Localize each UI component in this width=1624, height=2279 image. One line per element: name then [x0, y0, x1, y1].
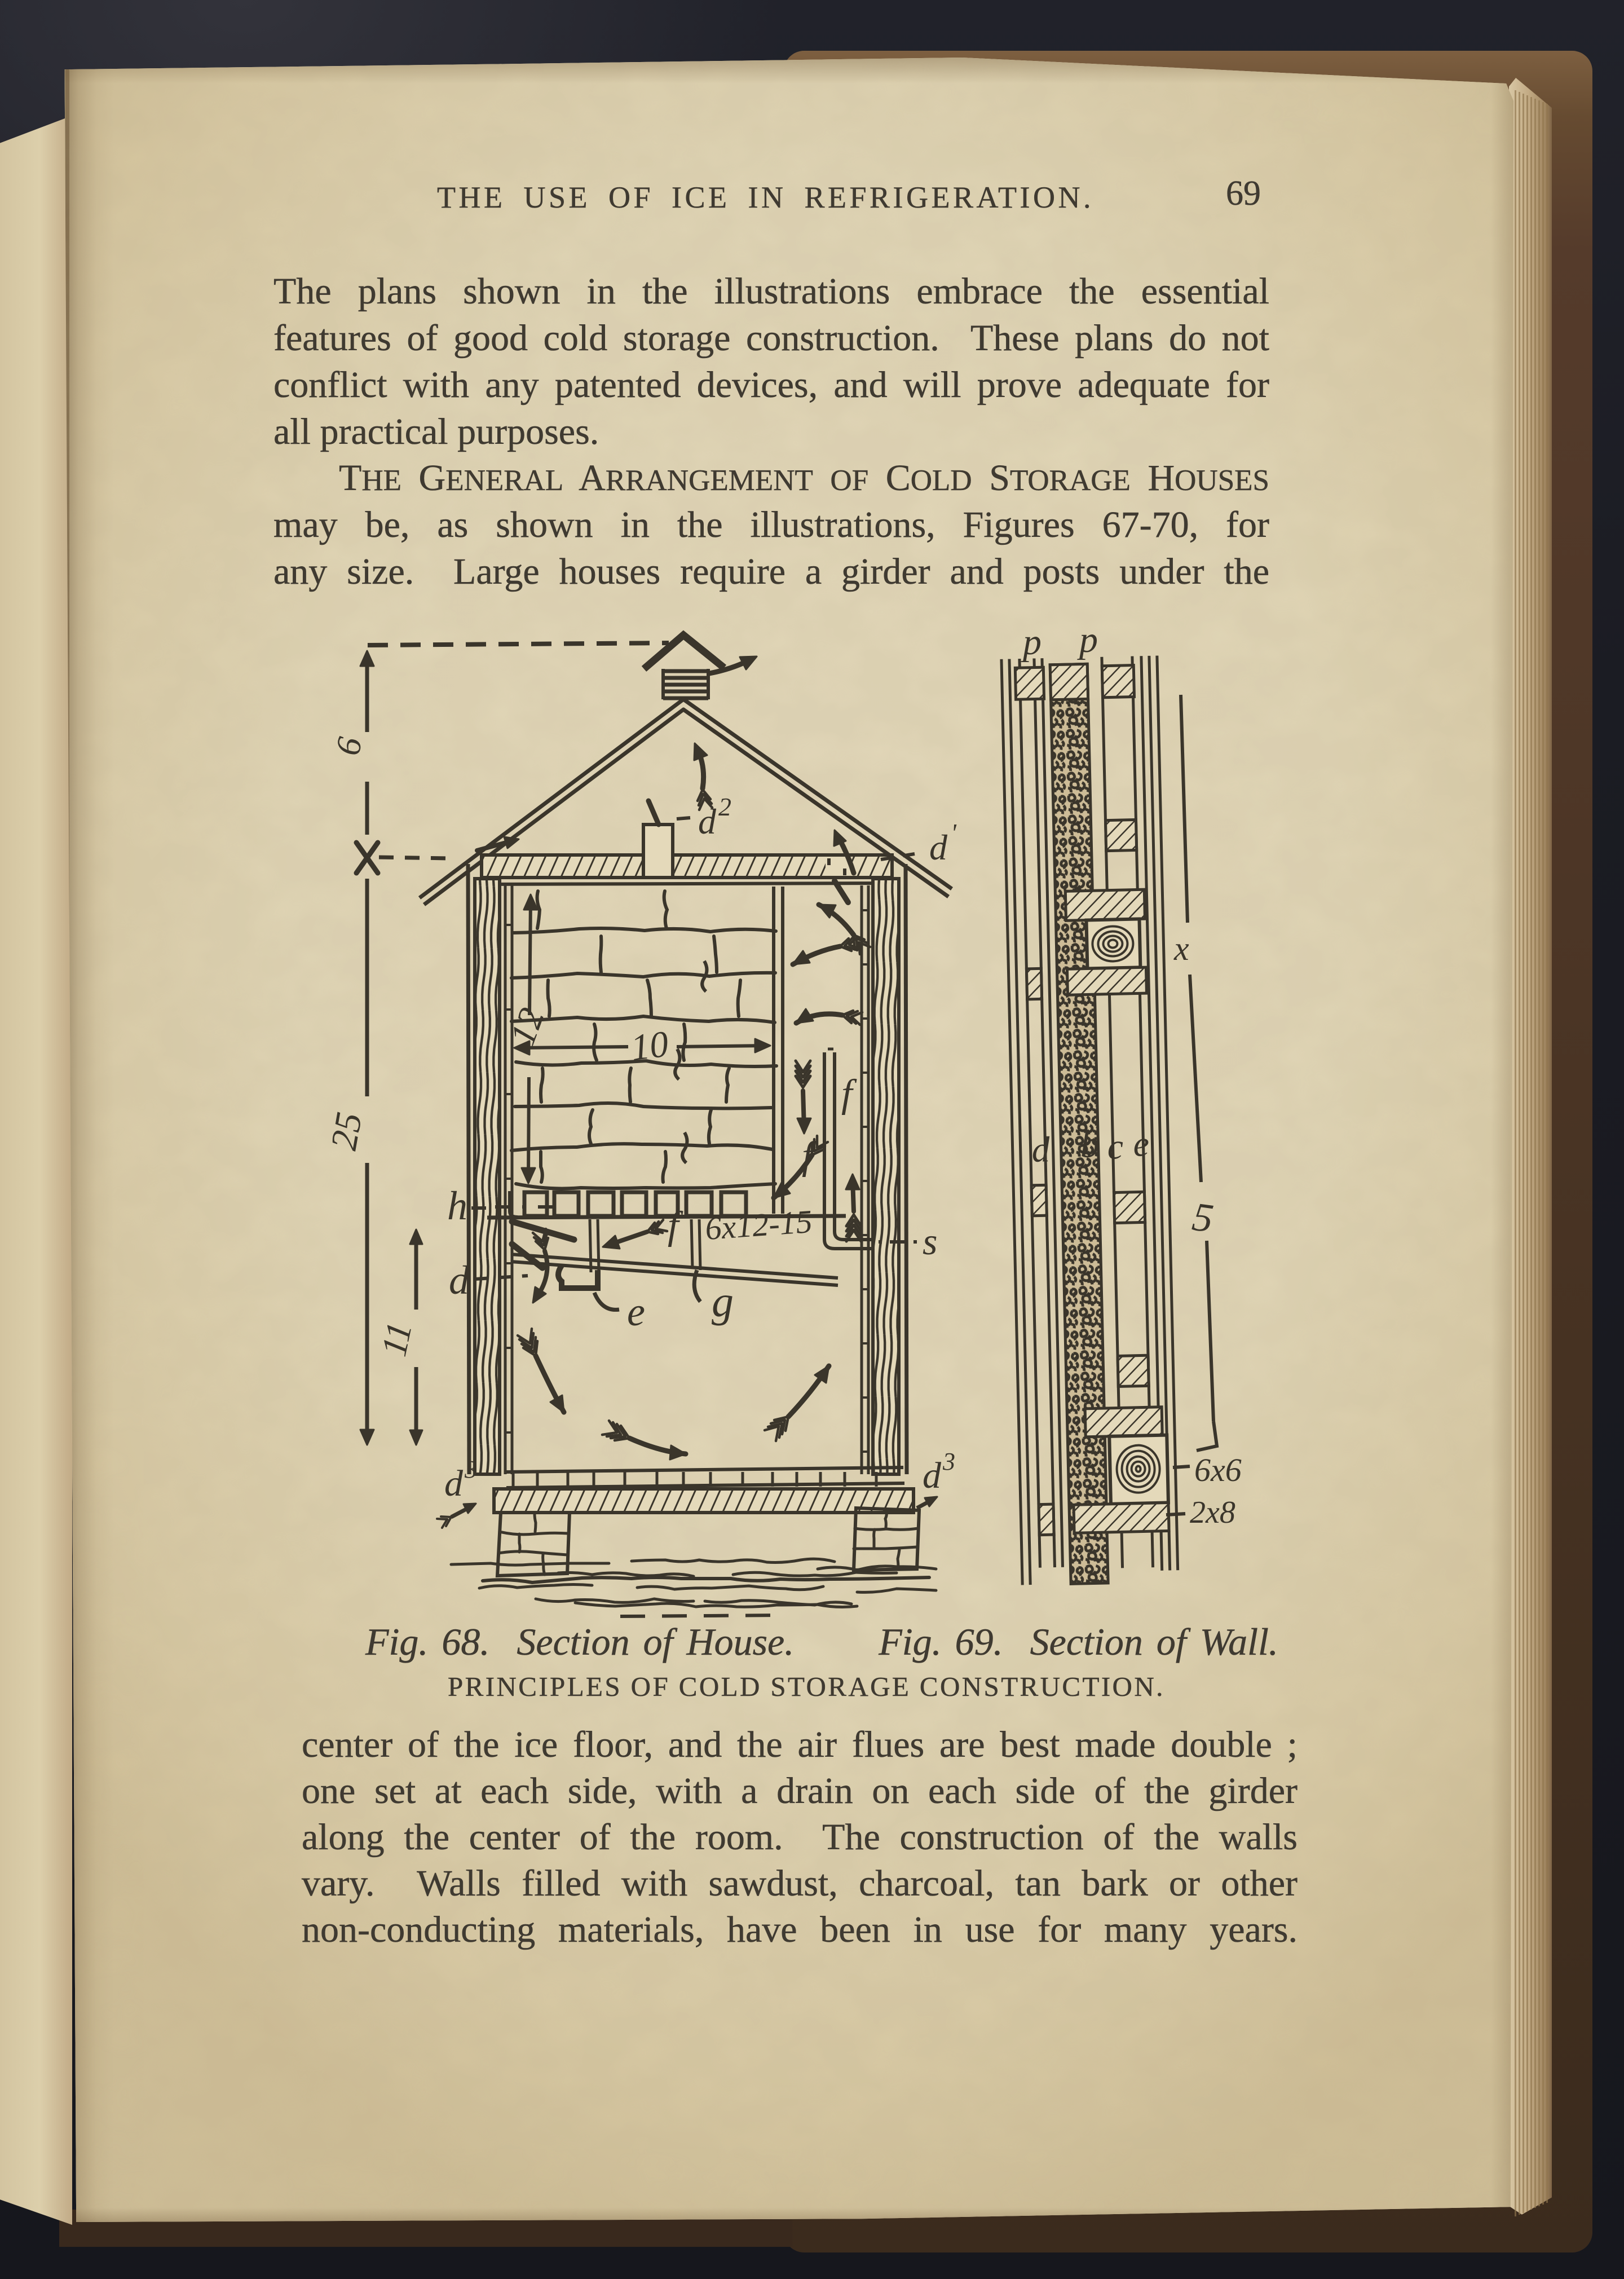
- svg-text:d: d: [1031, 1129, 1051, 1170]
- svg-text:h: h: [447, 1183, 467, 1228]
- svg-text:5: 5: [1190, 1194, 1216, 1241]
- svg-text:6x12-15: 6x12-15: [704, 1203, 813, 1247]
- svg-text:6x6: 6x6: [1194, 1452, 1242, 1488]
- svg-text:11: 11: [373, 1319, 420, 1360]
- svg-text:e: e: [1133, 1123, 1150, 1164]
- svg-text:e: e: [627, 1289, 645, 1334]
- svg-text:2x8: 2x8: [1190, 1495, 1235, 1530]
- svg-text:10: 10: [629, 1023, 670, 1068]
- svg-text:3: 3: [942, 1448, 955, 1475]
- svg-text:': ': [951, 818, 957, 847]
- svg-text:d: d: [444, 1463, 464, 1504]
- svg-text:s: s: [923, 1220, 937, 1263]
- svg-text:25: 25: [323, 1109, 370, 1153]
- svg-text:d: d: [929, 827, 948, 867]
- svg-text:p: p: [1077, 619, 1098, 660]
- svg-text:f: f: [668, 1204, 683, 1248]
- svg-text:p: p: [1021, 621, 1042, 663]
- svg-text:f: f: [841, 1072, 857, 1116]
- svg-text:d: d: [923, 1455, 942, 1496]
- svg-text:c: c: [1107, 1126, 1124, 1167]
- svg-text:b: b: [1080, 1122, 1100, 1166]
- svg-text:x: x: [1173, 930, 1189, 967]
- svg-text:6: 6: [329, 734, 369, 758]
- svg-text:3: 3: [464, 1456, 477, 1483]
- svg-text:d: d: [449, 1258, 470, 1303]
- svg-text:2: 2: [718, 792, 731, 821]
- svg-text:g: g: [712, 1277, 734, 1326]
